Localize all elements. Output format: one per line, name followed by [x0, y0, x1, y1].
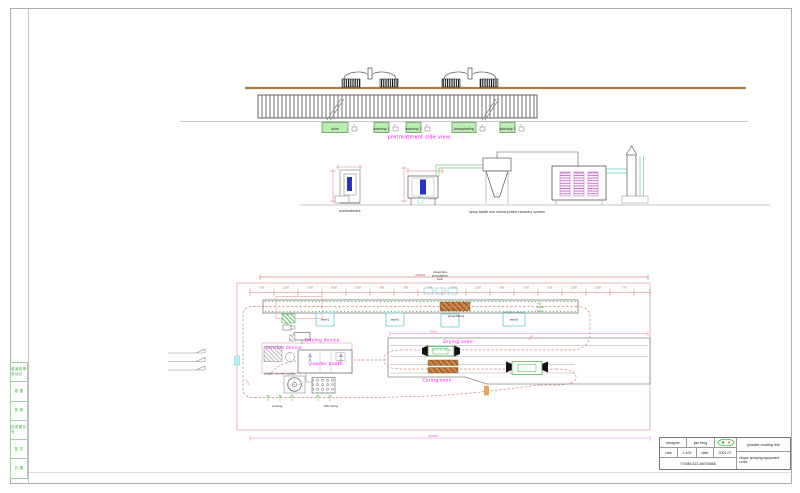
designer-label: designer	[660, 438, 687, 448]
sheet-frame	[11, 9, 792, 484]
rate-label: rate	[660, 448, 678, 458]
curing-oven-burner	[506, 362, 548, 375]
cad-drawing-sheet: skim washing 1 washing 2 phosphating was…	[0, 0, 800, 493]
filter-unit	[552, 166, 606, 205]
svg-text:1500: 1500	[595, 287, 602, 290]
oven-vent	[485, 386, 489, 395]
pump-icon	[480, 124, 485, 131]
tank-label: phosphating	[454, 127, 474, 131]
recovery-filter	[312, 378, 335, 394]
strip-cell: 描 图	[10, 382, 28, 401]
overall-dimension-line	[260, 275, 648, 281]
company-logo-icon	[716, 438, 736, 447]
strip-cell: 校 核	[10, 402, 28, 421]
strip-cell: 日 期	[10, 459, 28, 478]
tank-label: washing 2	[405, 127, 421, 131]
exhaust-stack	[606, 146, 648, 203]
phosphating-label: phosphating	[448, 314, 464, 318]
svg-text:1700: 1700	[523, 287, 530, 290]
rate-value: 1:100	[678, 448, 697, 458]
product-name: powder coating line	[737, 438, 790, 452]
tank-label: washing 1	[373, 127, 389, 131]
oven-dimension: 7500	[429, 330, 437, 334]
svg-text:water: water	[537, 305, 545, 309]
exhaust-fan-unit	[442, 68, 498, 87]
date-value: 2001.07	[714, 448, 737, 458]
curing-oven-label: Curing oven	[422, 378, 451, 384]
pump-icon	[519, 124, 524, 131]
designer-value: jiao feng	[687, 438, 715, 448]
pump-icon	[352, 124, 357, 131]
radius-dimension: 1500	[244, 378, 251, 386]
title-block-right: powder coating line xinyue spraying equi…	[737, 438, 790, 469]
drying-oven-label: Drying oven	[443, 339, 473, 345]
tank-label: skim	[331, 127, 339, 131]
svg-text:900: 900	[380, 287, 385, 290]
pump-icon	[393, 124, 398, 131]
loading-label: Loading	[272, 404, 283, 408]
phosphate-precipitation-note: phosphate precipitation tank	[424, 270, 457, 294]
bottom-dimension-line	[250, 436, 650, 442]
svg-text:1950: 1950	[355, 287, 362, 290]
pretreatment-section	[330, 164, 362, 203]
strip-cell: 签 字	[10, 440, 28, 459]
frame-marker	[235, 356, 240, 365]
title-block-left: designer jiao feng rate 1:100 date 2001.…	[660, 438, 737, 469]
workpiece	[347, 177, 352, 191]
left-title-strip: 增减改等变动记 描 图 校 核 旧底图总号 签 字 日 期	[10, 362, 28, 479]
svg-text:3000: 3000	[331, 287, 338, 290]
heater-bank	[428, 360, 458, 366]
logo-cell	[715, 438, 737, 448]
plan-tanks	[316, 312, 525, 327]
exhaust-fan-unit	[342, 68, 398, 87]
oven-housing	[388, 338, 650, 384]
heater-bank	[428, 368, 458, 374]
powder-duct	[436, 165, 486, 176]
powder-booth-label: powder booth	[309, 361, 342, 367]
pretreatment-side-view: skim washing 1 washing 2 phosphating was…	[180, 68, 748, 141]
date-label: date	[697, 448, 714, 458]
title-block: designer jiao feng rate 1:100 date 2001.…	[659, 437, 791, 470]
svg-text:tank: tank	[537, 309, 543, 313]
plan-view: 21654 750 2250 1700 3000 1950 900 800 90…	[168, 270, 650, 441]
svg-text:620: 620	[548, 287, 553, 290]
svg-text:775: 775	[622, 287, 627, 290]
process-tanks	[322, 122, 524, 133]
powder-recovery-label: powder recovery system	[264, 372, 297, 376]
svg-text:800: 800	[404, 287, 409, 290]
svg-text:2250: 2250	[283, 287, 290, 290]
phone-number: T:0086-523-88793666	[660, 458, 737, 469]
strip-cell: 旧底图总号	[10, 421, 28, 440]
workpiece	[420, 180, 426, 195]
tension-device-label: tension device	[266, 345, 302, 351]
pump-icon	[425, 124, 430, 131]
svg-text:1700: 1700	[307, 287, 314, 290]
company-name: xinyue spraying equipment co.ltd	[737, 452, 790, 469]
off-loading-label: Off loading	[324, 404, 339, 408]
recovery-cyclone-top	[284, 376, 305, 393]
booth-system-label: spray booth and monocyclone recovery sys…	[469, 210, 545, 214]
svg-text:hot: hot	[537, 302, 541, 306]
wash2-label: wash2	[391, 318, 400, 322]
svg-text:tank: tank	[437, 277, 443, 281]
spray-booth	[401, 166, 444, 205]
driving-device-label: Driving device	[304, 338, 339, 344]
flow-arrows	[168, 349, 205, 370]
strip-cell: 增减改等变动记	[10, 362, 28, 382]
side-view-title: pretreatment side view	[388, 135, 450, 141]
svg-text:2500: 2500	[571, 287, 578, 290]
hanger-icons	[266, 395, 332, 399]
pretreatment-tunnel	[258, 95, 537, 118]
svg-text:phosphate: phosphate	[433, 270, 447, 274]
svg-text:900: 900	[500, 287, 505, 290]
overall-dimension: 21654	[415, 273, 425, 277]
wash3-label: wash3	[510, 318, 519, 322]
loading-area: Loading Off loading	[266, 395, 338, 409]
svg-text:1200: 1200	[475, 287, 482, 290]
elevation-views: pretreatment	[300, 146, 770, 214]
bottom-dimension: 20000	[428, 434, 437, 438]
tank-label: washing 3	[499, 127, 515, 131]
drive-and-booth-area: Driving device tension device powder boo…	[262, 333, 352, 394]
svg-text:750: 750	[260, 287, 265, 290]
pretreatment-label: pretreatment	[339, 209, 361, 213]
svg-text:precipitation: precipitation	[432, 274, 449, 278]
drawing-canvas: skim washing 1 washing 2 phosphating was…	[0, 0, 800, 493]
part-dots	[267, 399, 331, 401]
